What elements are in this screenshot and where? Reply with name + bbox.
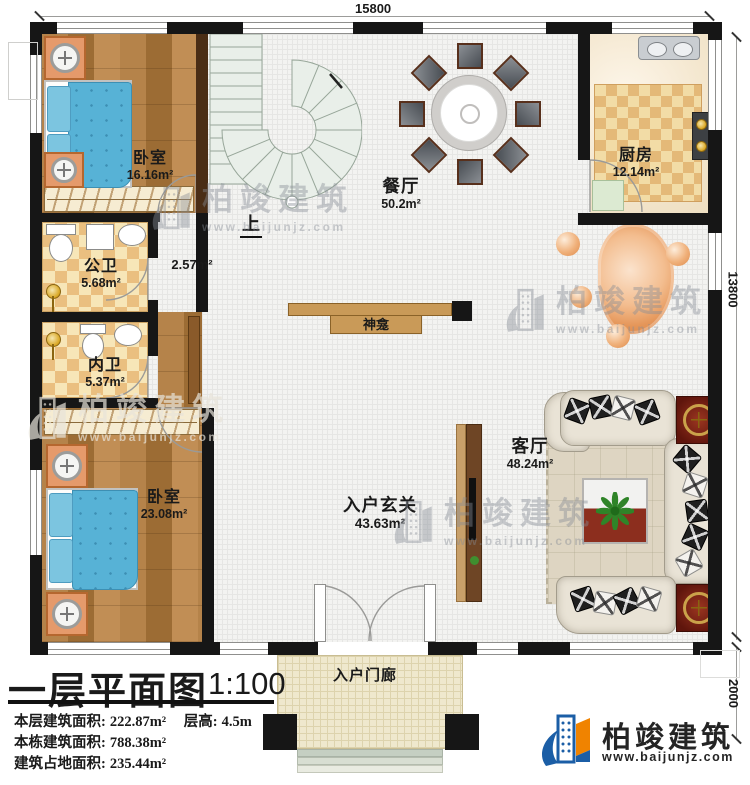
window bbox=[48, 642, 170, 655]
stat-label: 层高: bbox=[184, 714, 218, 730]
dimension-right-value: 13800 bbox=[726, 268, 741, 310]
room-area: 5.68m² bbox=[56, 276, 146, 290]
room-area: 43.63m² bbox=[325, 516, 435, 531]
wall bbox=[268, 642, 318, 655]
room-area: 12.14m² bbox=[591, 165, 681, 179]
wall bbox=[578, 34, 590, 160]
room-name: 厨房 bbox=[591, 147, 681, 165]
stat-label: 本栋建筑面积: bbox=[14, 735, 106, 751]
floor-plan-page: 神龛 bbox=[0, 0, 750, 785]
tv-wall-panel bbox=[456, 424, 466, 602]
room-label-bedroom-bottom: 卧室 23.08m² bbox=[119, 489, 209, 521]
room-name: 餐厅 bbox=[356, 177, 446, 197]
title-rule bbox=[8, 700, 274, 704]
kitchen-cabinet bbox=[592, 180, 624, 211]
dining-table-center bbox=[460, 104, 480, 124]
wall bbox=[42, 213, 160, 222]
porch-step bbox=[297, 765, 443, 773]
stat-value: 788.38m² bbox=[110, 735, 166, 751]
nightstand bbox=[46, 444, 88, 488]
partition-wall bbox=[196, 34, 208, 213]
extension-line-box bbox=[8, 42, 38, 100]
tv-icon bbox=[469, 478, 476, 540]
dining-chair bbox=[457, 43, 483, 69]
washer-icon bbox=[86, 224, 114, 250]
room-label-kitchen: 厨房 12.14m² bbox=[591, 147, 681, 179]
baijun-logo-icon bbox=[538, 710, 598, 772]
room-name: 卧室 bbox=[119, 489, 209, 507]
window bbox=[220, 642, 268, 655]
wall bbox=[578, 213, 722, 225]
room-area: 48.24m² bbox=[485, 457, 575, 471]
plan-title: 一层平面图 bbox=[8, 660, 208, 715]
footer-brand-url: www.baijunjz.com bbox=[602, 750, 734, 764]
room-label-public-bath: 公卫 5.68m² bbox=[56, 258, 146, 290]
room-label-porch: 入户门廊 bbox=[295, 668, 435, 685]
burner bbox=[696, 119, 707, 130]
plan-scale: 1:100 bbox=[208, 666, 286, 702]
shrine-column bbox=[452, 301, 472, 321]
porch-column bbox=[445, 714, 479, 750]
window bbox=[570, 642, 693, 655]
stat-value: 235.44m² bbox=[110, 756, 166, 772]
sink-basin bbox=[673, 42, 693, 57]
room-name: 入户玄关 bbox=[325, 496, 435, 516]
porch-column bbox=[263, 714, 297, 750]
room-name: 内卫 bbox=[60, 357, 150, 375]
stat-label: 本层建筑面积: bbox=[14, 714, 106, 730]
stat-label: 建筑占地面积: bbox=[14, 756, 106, 772]
room-name: 入户门廊 bbox=[295, 668, 435, 685]
shower-stem bbox=[52, 344, 54, 360]
nightstand bbox=[46, 592, 88, 636]
wall bbox=[30, 555, 42, 655]
plant-small-icon bbox=[470, 556, 479, 565]
room-area: 2.57m² bbox=[162, 258, 222, 273]
window bbox=[708, 40, 722, 130]
table-lamp-icon bbox=[50, 43, 80, 73]
washbasin-icon bbox=[114, 324, 142, 346]
kitchen-sink bbox=[638, 36, 700, 60]
table-lamp-icon bbox=[52, 451, 82, 481]
stat-value: 222.87m² bbox=[110, 714, 166, 730]
wall bbox=[708, 22, 722, 40]
window bbox=[423, 22, 546, 34]
stairs-up-label: 上 bbox=[240, 210, 262, 238]
bed-pillow bbox=[49, 539, 73, 583]
wall bbox=[42, 398, 158, 408]
wall bbox=[202, 408, 214, 642]
dining-chair bbox=[457, 159, 483, 185]
wall bbox=[30, 133, 42, 470]
window bbox=[612, 22, 693, 34]
dimension-top-value: 15800 bbox=[352, 1, 394, 16]
wardrobe-top bbox=[44, 186, 194, 212]
dining-chair bbox=[399, 101, 425, 127]
bed-pillow bbox=[49, 493, 73, 537]
wall bbox=[546, 22, 612, 34]
sink-basin bbox=[647, 42, 667, 57]
sofa-pillow bbox=[685, 499, 710, 524]
decor-ball bbox=[666, 242, 690, 266]
wall bbox=[42, 312, 158, 322]
wall bbox=[30, 642, 48, 655]
wall bbox=[170, 642, 220, 655]
window bbox=[30, 470, 42, 555]
wardrobe-bottom bbox=[44, 409, 200, 435]
entry-door-leaf bbox=[314, 584, 326, 642]
room-label-bedroom-top: 卧室 16.16m² bbox=[105, 150, 195, 182]
room-label-dining: 餐厅 50.2m² bbox=[356, 177, 446, 211]
decor-ball bbox=[606, 324, 630, 348]
nightstand bbox=[44, 152, 84, 188]
stair-hall-area-label: 2.57m² bbox=[162, 258, 222, 273]
table-lamp-icon bbox=[52, 599, 82, 629]
washbasin-icon bbox=[118, 224, 146, 246]
room-name: 客厅 bbox=[485, 437, 575, 457]
room-area: 5.37m² bbox=[60, 375, 150, 389]
toilet-icon bbox=[82, 333, 104, 359]
extension-line-box bbox=[700, 650, 740, 678]
room-name: 卧室 bbox=[105, 150, 195, 168]
window bbox=[477, 642, 518, 655]
entry-door-leaf bbox=[424, 584, 436, 642]
stat-row: 本层建筑面积:222.87m² 层高:4.5m bbox=[14, 712, 256, 733]
stat-value: 4.5m bbox=[222, 714, 252, 730]
door-leaf bbox=[188, 316, 200, 404]
stat-row: 本栋建筑面积:788.38m² bbox=[14, 733, 256, 754]
room-name: 公卫 bbox=[56, 258, 146, 276]
wall bbox=[148, 213, 158, 258]
shrine-label: 神龛 bbox=[363, 317, 389, 332]
nightstand bbox=[44, 36, 86, 80]
wall bbox=[428, 642, 477, 655]
dimension-line-top bbox=[40, 16, 710, 17]
bed-pillow bbox=[47, 86, 71, 132]
room-label-living: 客厅 48.24m² bbox=[485, 437, 575, 471]
room-area: 16.16m² bbox=[105, 168, 195, 182]
dimension-bottom-right-value: 2000 bbox=[726, 676, 741, 711]
room-area: 50.2m² bbox=[356, 197, 446, 211]
wall bbox=[148, 300, 158, 356]
window bbox=[708, 233, 722, 290]
table-lamp-icon bbox=[51, 157, 77, 183]
dining-chair bbox=[515, 101, 541, 127]
stat-row: 建筑占地面积:235.44m² bbox=[14, 754, 256, 775]
wall bbox=[708, 290, 722, 655]
decor-ball bbox=[556, 232, 580, 256]
porch-step bbox=[297, 749, 443, 757]
plan-stats: 本层建筑面积:222.87m² 层高:4.5m 本栋建筑面积:788.38m² … bbox=[14, 712, 256, 775]
window bbox=[57, 22, 167, 34]
plant-icon bbox=[596, 492, 634, 530]
room-label-inner-bath: 内卫 5.37m² bbox=[60, 357, 150, 389]
stove-icon bbox=[692, 112, 709, 160]
wall bbox=[518, 642, 570, 655]
sofa-pillow bbox=[588, 394, 614, 420]
porch-step bbox=[297, 757, 443, 765]
room-label-foyer: 入户玄关 43.63m² bbox=[325, 496, 435, 531]
spiral-staircase bbox=[204, 30, 362, 228]
wall bbox=[167, 22, 243, 34]
shower-stem bbox=[52, 296, 54, 312]
dimension-line-right bbox=[736, 38, 737, 640]
decor-ball bbox=[570, 286, 592, 308]
wall bbox=[353, 22, 423, 34]
burner bbox=[696, 141, 707, 152]
shrine-table: 神龛 bbox=[330, 315, 422, 334]
window bbox=[243, 22, 353, 34]
room-area: 23.08m² bbox=[119, 507, 209, 521]
